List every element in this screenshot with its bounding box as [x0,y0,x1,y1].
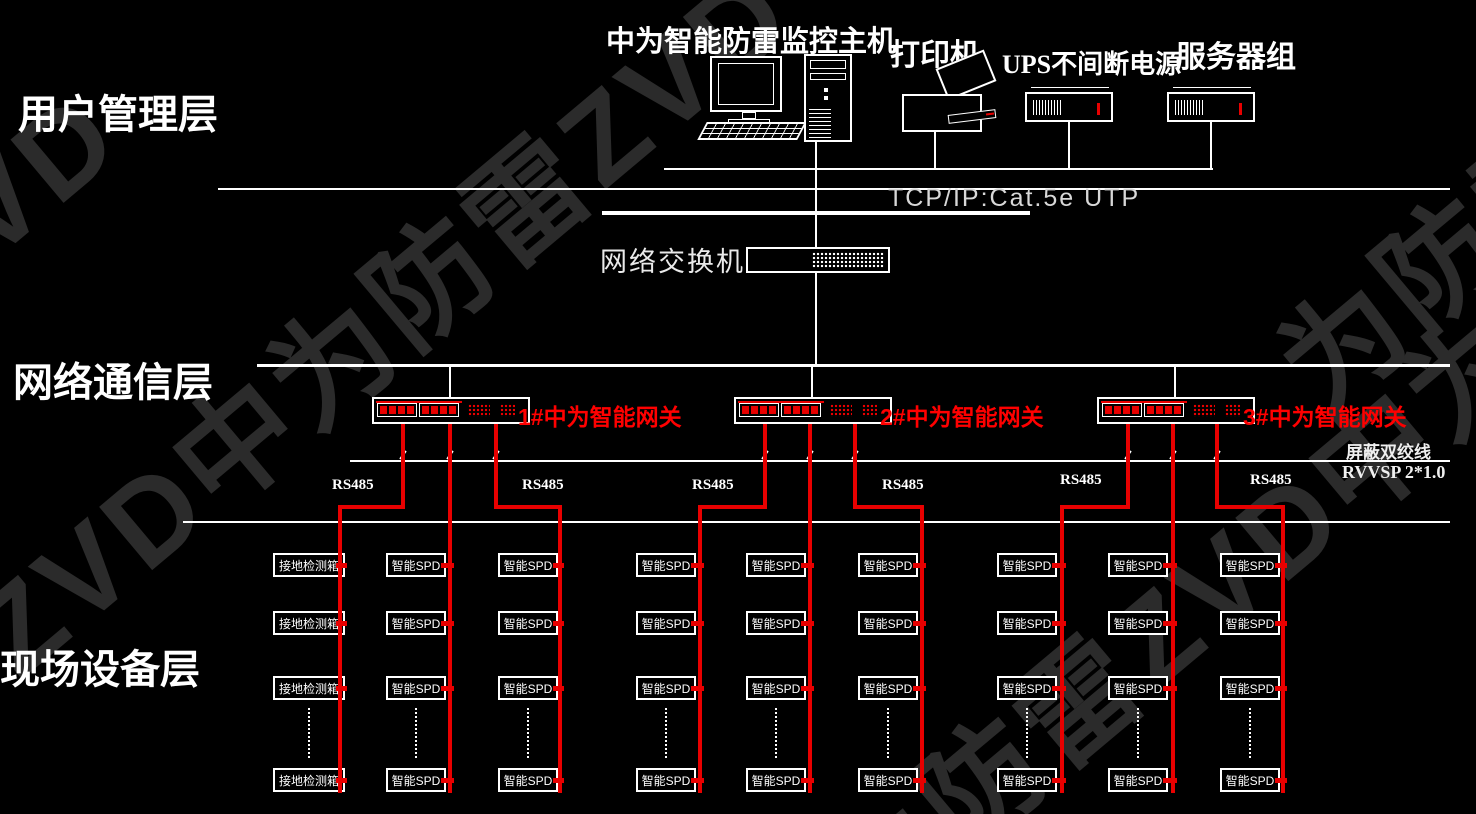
gateway-port-group [1144,403,1184,417]
monitor-stand [742,112,756,119]
ups-label: UPS不间断电源 [1002,44,1181,81]
column-ellipsis [665,708,667,758]
tower-vent-grille [809,106,831,138]
rj45-port-icon [811,406,818,414]
ground-detection-box: 智能SPD [997,611,1057,635]
ground-detection-box: 智能SPD [997,676,1057,700]
rs485-label: RS485 [692,477,734,494]
server-vent-hatch [1175,100,1205,115]
server-drop-line [1210,122,1212,168]
keyboard-icon [697,122,807,140]
gateway-label: 1#中为智能网关 [518,398,682,432]
tcpip-label: TCP/IP:Cat.5e UTP [888,184,1140,213]
rs485-wire-trunk [698,505,702,793]
ups-drop-line [1068,122,1070,168]
ground-detection-box: 接地检测箱 [273,768,345,792]
rs485-wire-trunk [558,505,562,793]
rj45-port-icon [769,406,776,414]
ground-detection-box: 智能SPD [636,768,696,792]
rs485-wire-elbow [494,505,562,509]
column-ellipsis [308,708,310,758]
rj45-port-icon [1174,406,1181,414]
diagram-canvas: ZVD中为防雷ZVD中为防雷ZVD中为防雷为防雷ZVDZVD 用户管理层 网络通… [0,0,1476,814]
rj45-port-icon [1165,406,1172,414]
rj45-port-icon [422,406,429,414]
bus-to-gateway-line [449,367,451,397]
gateway-dip-dots [1225,404,1240,417]
rs485-wire-trunk [338,505,342,793]
ground-detection-box: 智能SPD [1220,768,1280,792]
rs485-label: RS485 [882,477,924,494]
rs485-wire-vertical [1215,424,1219,509]
ground-detection-box: 智能SPD [498,553,558,577]
gateway-dip-dots [830,404,852,417]
rj45-port-icon [784,406,791,414]
rs485-wire-elbow [698,505,767,509]
ground-detection-box: 智能SPD [746,768,806,792]
rj45-port-icon [398,406,405,414]
rs485-wire-vertical [401,424,405,509]
ground-detection-box: 智能SPD [386,611,446,635]
switch-label: 网络交换机 [600,240,745,279]
tower-drive-bay-2 [810,73,846,80]
ground-detection-box: 智能SPD [746,676,806,700]
ground-detection-box: 智能SPD [1108,611,1168,635]
monitor-screen [718,63,774,105]
rj45-port-icon [751,406,758,414]
rs485-wire-trunk [920,505,924,793]
rj45-port-icon [1132,406,1139,414]
tower-drive-bay-1 [810,60,846,69]
ground-detection-box: 智能SPD [636,553,696,577]
rs485-bus-line [350,460,1450,462]
ground-detection-box: 接地检测箱 [273,611,345,635]
ground-detection-box: 接地检测箱 [273,553,345,577]
switch-port-pattern [812,252,884,268]
gateway-dip-dots [862,404,877,417]
tower-button [824,88,828,92]
gateway-port-group [739,403,779,417]
ups-vent-hatch [1033,100,1063,115]
ground-detection-box: 智能SPD [1108,553,1168,577]
rj45-port-icon [1105,406,1112,414]
rs485-wire-elbow [1060,505,1130,509]
ground-detection-box: 智能SPD [997,553,1057,577]
gateway-port-group [781,403,821,417]
gateway-port-group [419,403,459,417]
layer-label-user-management: 用户管理层 [18,82,218,140]
rj45-port-icon [742,406,749,414]
column-ellipsis [527,708,529,758]
ground-detection-box: 智能SPD [858,768,918,792]
ground-detection-box: 智能SPD [386,553,446,577]
rj45-port-icon [431,406,438,414]
rs485-wire-elbow [1215,505,1285,509]
rj45-port-icon [389,406,396,414]
management-layer-line [218,188,1450,190]
ups-led [1097,103,1100,115]
gateway-dip-dots [500,404,515,417]
comm-bus-line [257,364,1450,367]
server-led [1239,103,1242,115]
host-to-switch-line [815,168,817,247]
rs485-wire-elbow [853,505,924,509]
top-bus-line [664,168,1213,170]
ground-detection-box: 智能SPD [1220,553,1280,577]
gateway-port-group [377,403,417,417]
gateway-label: 2#中为智能网关 [880,398,1044,432]
column-ellipsis [1026,708,1028,758]
shielded-pair-label: 屏蔽双绞线 [1346,438,1431,463]
rj45-port-icon [760,406,767,414]
rj45-port-icon [440,406,447,414]
ground-detection-box: 智能SPD [636,676,696,700]
rs485-wire-vertical [1171,424,1175,793]
rs485-wire-trunk [1060,505,1064,793]
rs485-wire-vertical [1126,424,1130,509]
ground-detection-box: 智能SPD [746,553,806,577]
layer-label-field-devices: 现场设备层 [0,637,200,695]
rj45-port-icon [793,406,800,414]
layer-label-network-comm: 网络通信层 [13,350,213,408]
field-layer-line [183,521,1450,523]
bus-to-gateway-line [1174,367,1176,397]
rs485-wire-vertical [853,424,857,509]
column-ellipsis [887,708,889,758]
ground-detection-box: 智能SPD [498,611,558,635]
rs485-label: RS485 [1060,472,1102,489]
switch-to-bus-line [815,273,817,364]
gateway-label: 3#中为智能网关 [1243,398,1407,432]
gateway-dip-dots [468,404,490,417]
rs485-wire-vertical [808,424,812,793]
ground-detection-box: 智能SPD [746,611,806,635]
rj45-port-icon [407,406,414,414]
rj45-port-icon [802,406,809,414]
column-ellipsis [415,708,417,758]
ground-detection-box: 智能SPD [858,553,918,577]
ground-detection-box: 智能SPD [1108,676,1168,700]
ground-detection-box: 智能SPD [386,676,446,700]
rj45-port-icon [1156,406,1163,414]
ground-detection-box: 智能SPD [1220,611,1280,635]
ground-detection-box: 接地检测箱 [273,676,345,700]
servers-label: 服务器组 [1176,32,1296,76]
server-top-edge [1173,87,1251,88]
ups-top-edge [1031,87,1109,88]
ground-detection-box: 智能SPD [636,611,696,635]
ground-detection-box: 智能SPD [1220,676,1280,700]
ground-detection-box: 智能SPD [498,676,558,700]
rj45-port-icon [1123,406,1130,414]
rj45-port-icon [380,406,387,414]
column-ellipsis [1249,708,1251,758]
tower-led [824,96,828,100]
cable-spec-label: RVVSP 2*1.0 [1342,462,1445,483]
rs485-label: RS485 [332,477,374,494]
rs485-wire-vertical [494,424,498,509]
rs485-label: RS485 [522,477,564,494]
host-label: 中为智能防雷监控主机 [606,18,896,60]
rj45-port-icon [449,406,456,414]
column-ellipsis [775,708,777,758]
ground-detection-box: 智能SPD [386,768,446,792]
gateway-port-group [1102,403,1142,417]
printer-drop-line [934,130,936,168]
ground-detection-box: 智能SPD [858,676,918,700]
rj45-port-icon [1114,406,1121,414]
gateway-dip-dots [1193,404,1215,417]
rs485-wire-vertical [448,424,452,793]
bus-to-gateway-line [811,367,813,397]
column-ellipsis [1137,708,1139,758]
ground-detection-box: 智能SPD [498,768,558,792]
rs485-wire-elbow [338,505,405,509]
rj45-port-icon [1147,406,1154,414]
ground-detection-box: 智能SPD [1108,768,1168,792]
rs485-label: RS485 [1250,472,1292,489]
rs485-wire-trunk [1281,505,1285,793]
rs485-wire-vertical [763,424,767,509]
host-drop-line [815,140,817,168]
ground-detection-box: 智能SPD [858,611,918,635]
ground-detection-box: 智能SPD [997,768,1057,792]
